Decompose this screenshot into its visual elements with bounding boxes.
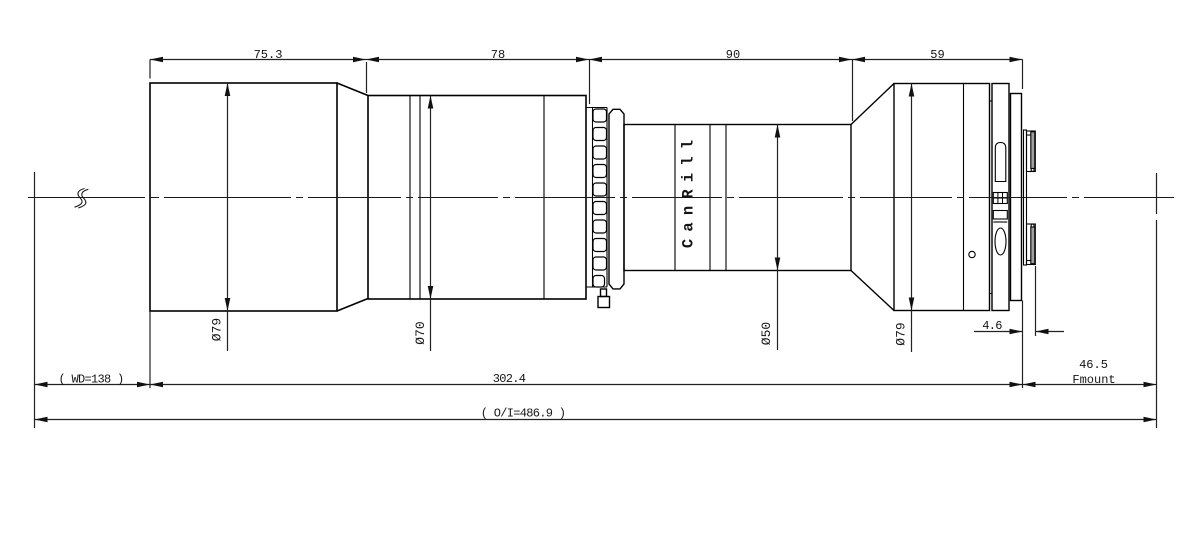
- svg-text:46.5: 46.5: [1079, 358, 1108, 372]
- svg-text:Ø70: Ø70: [413, 321, 428, 344]
- svg-text:75.3: 75.3: [254, 48, 283, 62]
- svg-text:78: 78: [491, 48, 505, 62]
- svg-text:4.6: 4.6: [982, 319, 1002, 333]
- svg-text:Ø79: Ø79: [210, 318, 225, 341]
- svg-text:( WD=138 ): ( WD=138 ): [58, 373, 123, 387]
- svg-text:Ø50: Ø50: [759, 322, 774, 345]
- svg-text:59: 59: [930, 48, 944, 62]
- svg-text:Fmount: Fmount: [1072, 373, 1115, 387]
- svg-text:CanRill: CanRill: [680, 133, 698, 249]
- svg-text:90: 90: [726, 48, 740, 62]
- svg-text:302.4: 302.4: [493, 372, 526, 386]
- svg-text:Ø79: Ø79: [894, 322, 909, 345]
- svg-text:( O/I=486.9 ): ( O/I=486.9 ): [481, 407, 566, 421]
